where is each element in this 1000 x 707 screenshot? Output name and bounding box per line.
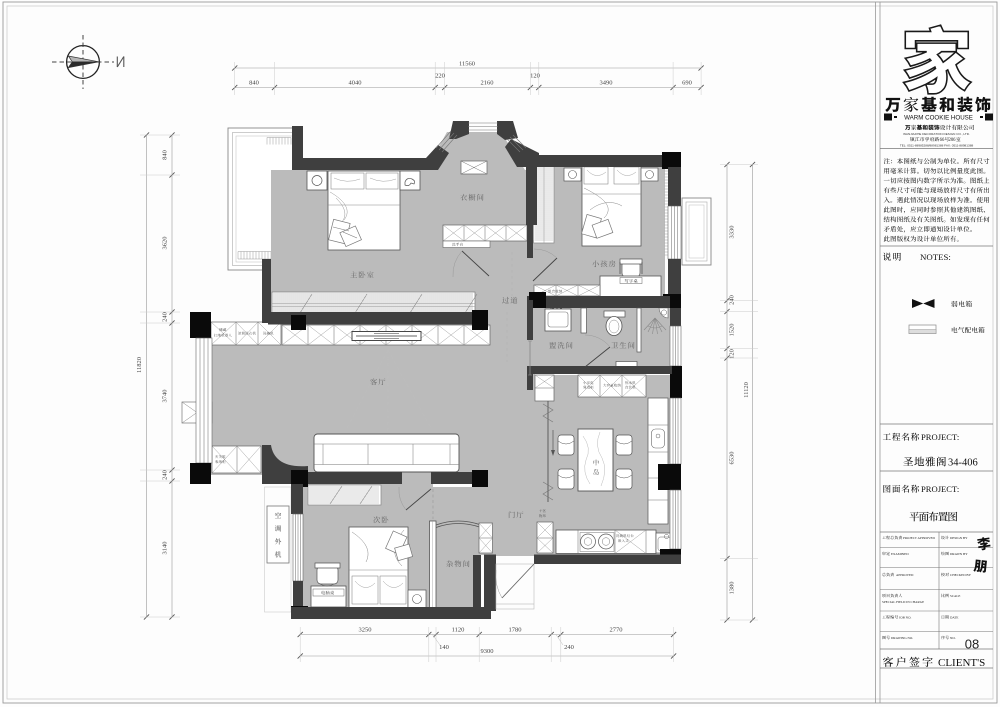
svg-text:DESIGN BY: DESIGN BY xyxy=(950,536,968,540)
svg-text:PROJECT:: PROJECT: xyxy=(921,432,959,442)
svg-text:WARM COOKIE HOUSE: WARM COOKIE HOUSE xyxy=(904,115,973,122)
svg-text:690: 690 xyxy=(682,80,692,87)
svg-text:PROJECT:: PROJECT: xyxy=(921,484,959,494)
svg-text:11820: 11820 xyxy=(136,357,143,373)
svg-text:3140: 3140 xyxy=(162,542,169,555)
svg-text:1380: 1380 xyxy=(729,582,736,595)
svg-text:PROJECT APPROVED: PROJECT APPROVED xyxy=(903,536,936,540)
svg-text:CHECKED BY: CHECKED BY xyxy=(950,573,972,577)
svg-text:9300: 9300 xyxy=(481,648,494,655)
svg-text:JOB NO.: JOB NO. xyxy=(899,616,911,620)
svg-text:1780: 1780 xyxy=(509,627,522,634)
svg-text:WANJIAJIHE DECORATION DESIGN C: WANJIAJIHE DECORATION DESIGN CO., LTD. xyxy=(903,132,970,136)
svg-text:240: 240 xyxy=(564,644,574,651)
svg-text:240: 240 xyxy=(162,470,169,480)
svg-text:TEL: 0511-88985288/88981388: TEL: 0511-88985288/88981388 FAX: 0511-88… xyxy=(900,144,974,148)
svg-text:2770: 2770 xyxy=(610,627,623,634)
svg-text:2160: 2160 xyxy=(481,80,494,87)
svg-text:66: 66 xyxy=(940,138,945,143)
svg-text:206: 206 xyxy=(948,138,956,143)
svg-text:NO.: NO. xyxy=(950,636,956,640)
svg-text:240: 240 xyxy=(729,295,736,305)
svg-text:3490: 3490 xyxy=(600,80,613,87)
svg-text:APPROVED: APPROVED xyxy=(896,573,914,577)
svg-text:SPECIAL FIELD IN CHARGE: SPECIAL FIELD IN CHARGE xyxy=(882,600,924,604)
svg-text:840: 840 xyxy=(162,150,169,160)
svg-text:6530: 6530 xyxy=(729,452,736,465)
svg-text:EXAMINED: EXAMINED xyxy=(891,552,909,556)
svg-text:4040: 4040 xyxy=(349,80,362,87)
svg-text:220: 220 xyxy=(435,73,445,80)
svg-text:SCALE: SCALE xyxy=(950,594,960,598)
svg-text:08: 08 xyxy=(965,637,979,652)
svg-text:3250: 3250 xyxy=(359,627,372,634)
svg-text:240: 240 xyxy=(162,312,169,322)
svg-text:NOTES:: NOTES: xyxy=(920,252,951,262)
svg-text:3330: 3330 xyxy=(729,226,736,239)
svg-text:DRAWN BY: DRAWN BY xyxy=(950,552,968,556)
svg-text:11560: 11560 xyxy=(459,61,475,68)
svg-text:CLIENT'S: CLIENT'S xyxy=(938,657,985,669)
svg-text:3740: 3740 xyxy=(162,390,169,403)
svg-text:1120: 1120 xyxy=(452,627,465,634)
svg-text:1520: 1520 xyxy=(729,324,736,337)
svg-text:11120: 11120 xyxy=(743,382,750,398)
svg-text:140: 140 xyxy=(439,644,449,651)
svg-text:3620: 3620 xyxy=(162,237,169,250)
svg-text:DRAWING NO.: DRAWING NO. xyxy=(891,636,913,640)
svg-text:DATE: DATE xyxy=(950,616,958,620)
svg-text:840: 840 xyxy=(249,80,259,87)
svg-text:120: 120 xyxy=(530,73,540,80)
svg-text:120: 120 xyxy=(729,349,736,359)
svg-text:34-406: 34-406 xyxy=(948,458,978,469)
